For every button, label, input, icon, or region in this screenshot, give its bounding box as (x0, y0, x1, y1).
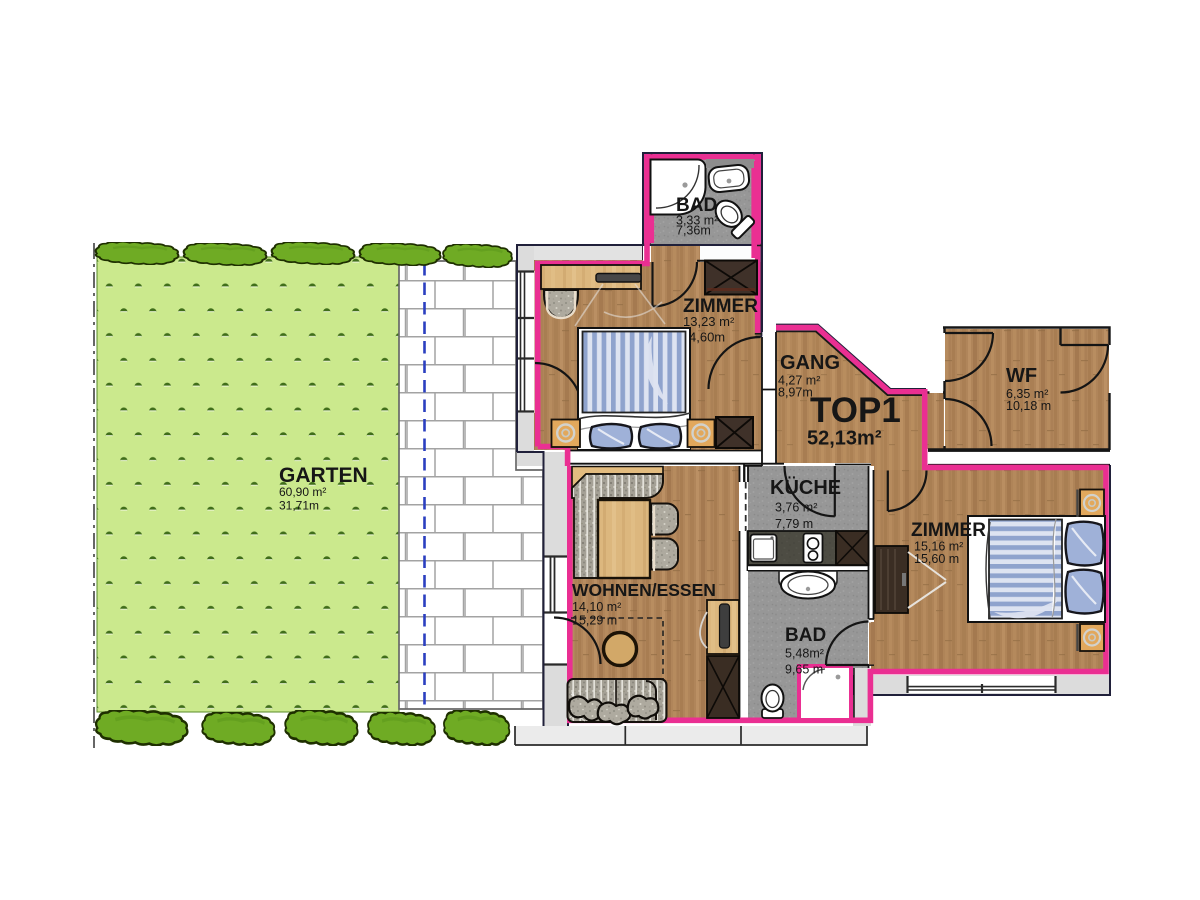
svg-text:GANG: GANG (780, 352, 840, 374)
svg-text:4,60m: 4,60m (689, 330, 725, 345)
svg-text:9,65 m: 9,65 m (785, 663, 823, 677)
svg-text:31,71m: 31,71m (279, 499, 319, 513)
svg-text:7,36m: 7,36m (676, 224, 711, 238)
svg-text:60,90 m²: 60,90 m² (279, 485, 326, 499)
svg-text:13,23 m²: 13,23 m² (683, 314, 735, 329)
svg-text:15,29 m: 15,29 m (572, 614, 617, 628)
svg-text:3,76 m²: 3,76 m² (775, 501, 817, 515)
svg-text:7,79 m: 7,79 m (775, 517, 813, 531)
svg-text:15,60 m: 15,60 m (914, 552, 959, 566)
svg-text:8,97m: 8,97m (778, 386, 813, 400)
svg-text:GARTEN: GARTEN (279, 464, 368, 487)
svg-text:52,13m²: 52,13m² (807, 428, 882, 450)
svg-text:BAD: BAD (785, 625, 826, 646)
svg-text:TOP1: TOP1 (810, 391, 901, 430)
svg-text:ZIMMER: ZIMMER (911, 520, 986, 541)
svg-text:5,48m²: 5,48m² (785, 647, 824, 661)
svg-text:WF: WF (1006, 365, 1037, 387)
svg-text:10,18 m: 10,18 m (1006, 399, 1051, 413)
svg-text:14,10 m²: 14,10 m² (572, 600, 621, 614)
svg-text:KÜCHE: KÜCHE (770, 476, 841, 499)
svg-text:WOHNEN/ESSEN: WOHNEN/ESSEN (572, 580, 716, 600)
